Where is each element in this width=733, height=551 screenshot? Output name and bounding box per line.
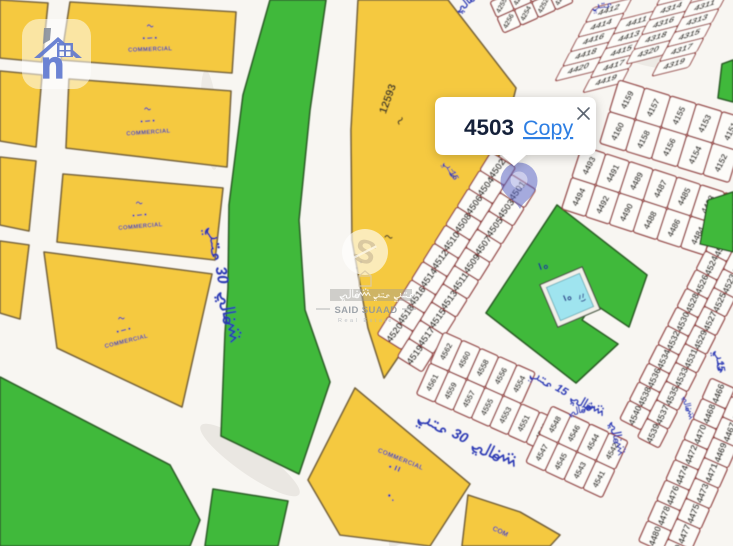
svg-text:n: n [41, 45, 64, 87]
svg-text:30: 30 [212, 265, 232, 285]
svg-text:Copy: Copy [523, 116, 573, 140]
svg-text:SAID SUAAD: SAID SUAAD [334, 305, 397, 316]
svg-text:4503: 4503 [464, 115, 514, 140]
svg-text:Real Estate: Real Estate [338, 318, 394, 324]
